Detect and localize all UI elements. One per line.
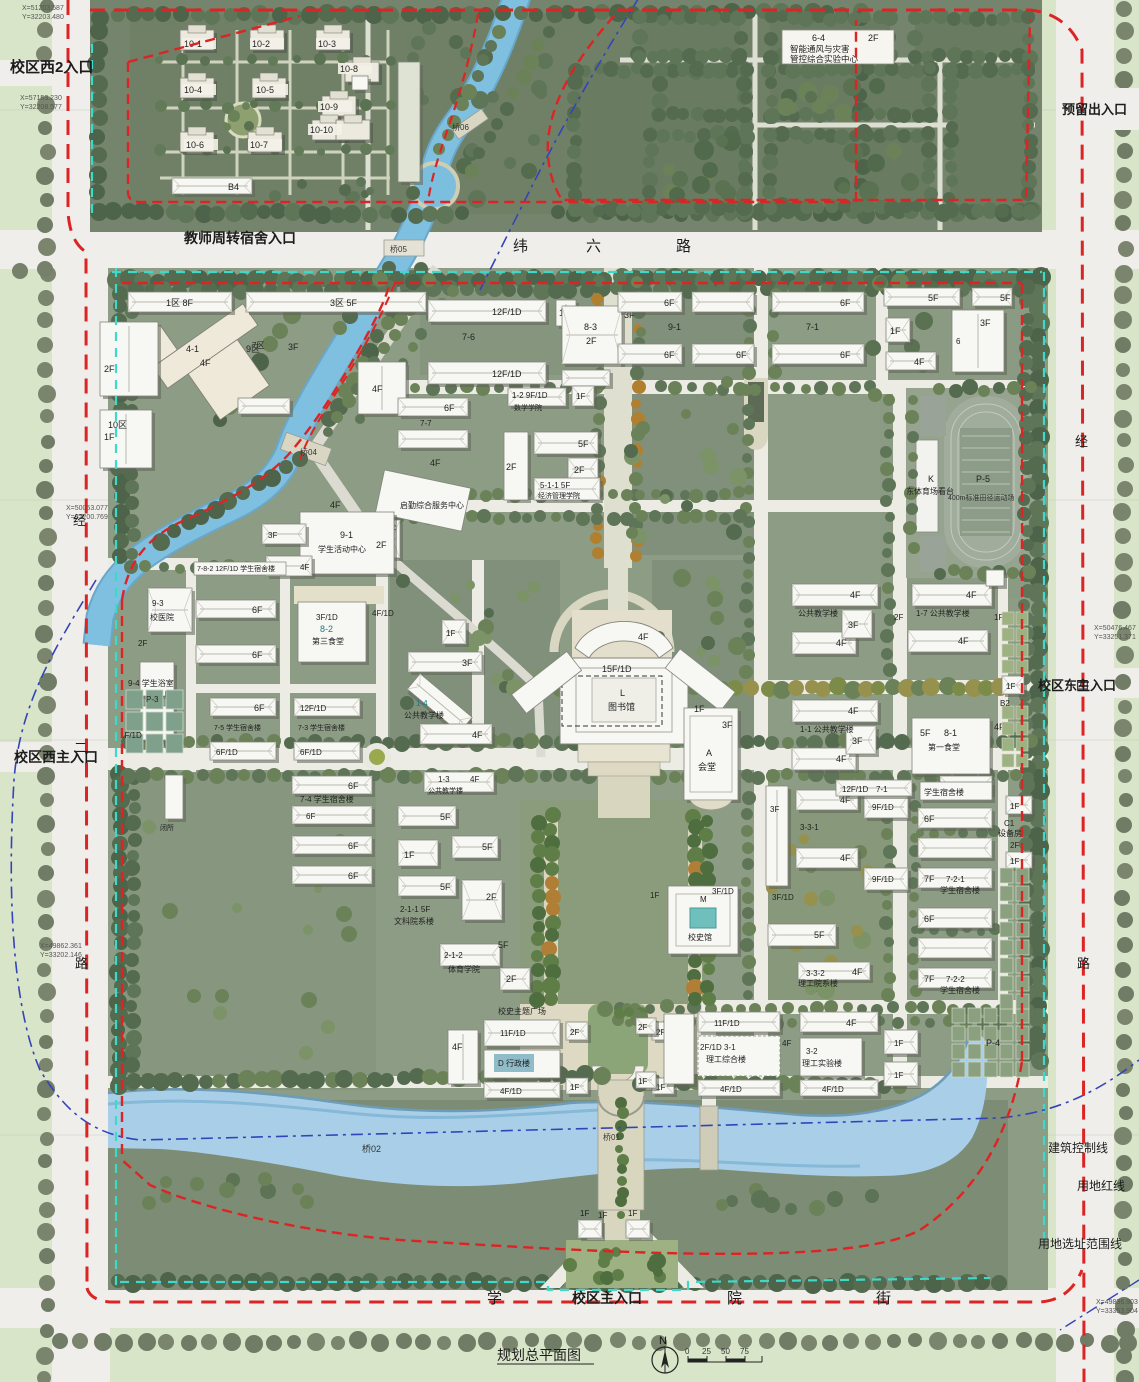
svg-text:文科院系楼: 文科院系楼 [394,916,434,926]
svg-text:6F: 6F [348,871,359,881]
svg-text:理工实验楼: 理工实验楼 [802,1058,842,1068]
svg-text:6F: 6F [924,914,935,924]
svg-text:11F/1D: 11F/1D [500,1029,526,1038]
svg-text:7-7: 7-7 [420,419,432,428]
svg-text:P-3: P-3 [146,695,159,704]
svg-text:理工院系楼: 理工院系楼 [798,978,838,988]
svg-text:6F: 6F [254,703,265,713]
svg-text:4F: 4F [848,706,859,716]
svg-text:4F: 4F [958,636,969,646]
svg-text:学: 学 [487,1290,502,1307]
svg-text:图书馆: 图书馆 [608,701,635,712]
svg-text:启勤综合服务中心: 启勤综合服务中心 [400,500,464,510]
svg-text:D 行政楼: D 行政楼 [498,1058,530,1068]
svg-text:50: 50 [721,1347,730,1356]
svg-text:学生宿舍楼: 学生宿舍楼 [940,985,980,995]
svg-text:4F: 4F [470,775,479,784]
svg-text:Y=33353.904: Y=33353.904 [1096,1308,1138,1315]
svg-text:4F: 4F [852,967,863,977]
svg-text:1F: 1F [570,1083,579,1092]
svg-text:2F/1D 3-1: 2F/1D 3-1 [700,1043,736,1052]
svg-text:2F: 2F [638,1023,647,1032]
svg-text:9-1: 9-1 [668,322,681,332]
svg-text:7区: 7区 [252,341,264,350]
svg-text:10-5: 10-5 [256,85,274,95]
svg-text:4F: 4F [846,1018,857,1028]
svg-text:4F: 4F [914,357,925,367]
svg-text:6F/1D: 6F/1D [216,748,238,757]
svg-text:预留出入口: 预留出入口 [1062,102,1127,117]
svg-text:校区主入口: 校区主入口 [572,1290,642,1306]
svg-text:3F: 3F [288,342,299,352]
svg-text:校区西2入口: 校区西2入口 [10,58,93,76]
svg-text:街: 街 [876,1290,891,1307]
svg-text:1区 8F: 1区 8F [166,298,194,308]
svg-text:2F: 2F [104,364,115,374]
svg-text:400m标准田径运动场: 400m标准田径运动场 [948,493,1015,502]
svg-text:4-1: 4-1 [186,344,199,354]
svg-text:3F: 3F [770,805,779,814]
svg-text:3F/1D: 3F/1D [316,613,338,622]
svg-text:闭所: 闭所 [160,823,174,832]
svg-text:12F/1D: 12F/1D [842,785,868,794]
svg-text:10-4: 10-4 [184,85,202,95]
svg-text:X=50053.077: X=50053.077 [66,505,108,512]
svg-text:2F: 2F [868,33,879,43]
svg-text:2-1-2: 2-1-2 [444,951,463,960]
svg-text:4F/1D: 4F/1D [720,1085,742,1094]
svg-text:桥02: 桥02 [362,1143,381,1154]
svg-text:4F: 4F [452,1042,463,1052]
svg-text:设备房: 设备房 [998,828,1022,838]
svg-text:X=51203.587: X=51203.587 [22,5,64,12]
svg-text:4F: 4F [300,563,309,572]
svg-text:纬: 纬 [513,238,528,255]
svg-text:1F: 1F [576,392,585,401]
svg-text:3F: 3F [852,736,863,746]
svg-text:校史主题广场: 校史主题广场 [498,1006,546,1016]
svg-text:桥04: 桥04 [300,447,317,457]
svg-text:7-3 学生宿舍楼: 7-3 学生宿舍楼 [298,723,345,732]
svg-text:7-4 学生宿舍楼: 7-4 学生宿舍楼 [300,794,354,804]
svg-text:规划总平面图: 规划总平面图 [497,1347,581,1363]
svg-text:10-2: 10-2 [252,39,270,49]
svg-text:体育学院: 体育学院 [448,964,480,974]
svg-text:4F: 4F [850,590,861,600]
svg-text:1F: 1F [628,1209,637,1218]
svg-text:1-4: 1-4 [416,699,428,708]
svg-text:1F: 1F [650,891,659,900]
svg-text:2F: 2F [376,540,387,550]
svg-text:Y=32203.480: Y=32203.480 [22,14,64,21]
svg-text:学生宿舍楼: 学生宿舍楼 [924,787,964,797]
svg-text:X=49862.361: X=49862.361 [40,943,82,950]
svg-text:4F: 4F [372,384,383,394]
svg-text:6F: 6F [348,781,359,791]
svg-text:4F/1D: 4F/1D [500,1087,522,1096]
svg-text:公共教学楼: 公共教学楼 [798,608,838,618]
svg-text:7-1: 7-1 [806,322,819,332]
svg-text:1F: 1F [1010,857,1019,866]
svg-text:2F: 2F [486,892,497,902]
svg-text:3-3-1: 3-3-1 [800,823,819,832]
svg-text:3F: 3F [268,531,277,540]
svg-text:C1: C1 [1004,819,1015,828]
svg-text:X=57153.230: X=57153.230 [20,95,62,102]
svg-text:2F: 2F [570,1028,579,1037]
svg-text:5F: 5F [498,940,509,950]
svg-text:6F: 6F [348,841,359,851]
svg-text:1F: 1F [1010,802,1019,811]
svg-text:10-3: 10-3 [318,39,336,49]
svg-text:6F: 6F [444,403,455,413]
svg-text:学生活动中心: 学生活动中心 [318,544,366,554]
svg-text:7-5 学生宿舍楼: 7-5 学生宿舍楼 [214,723,261,732]
svg-text:2F: 2F [574,465,585,475]
svg-text:15F/1D: 15F/1D [602,664,632,674]
svg-text:桥01: 桥01 [603,1132,620,1142]
svg-text:0: 0 [685,1347,690,1356]
svg-text:院: 院 [727,1289,742,1307]
svg-text:8-1: 8-1 [944,728,957,738]
svg-text:12F/1D: 12F/1D [300,704,326,713]
svg-text:1-3: 1-3 [438,775,450,784]
svg-text:1F: 1F [694,704,705,714]
svg-text:4F: 4F [840,853,851,863]
svg-text:5-1-1 5F: 5-1-1 5F [540,481,570,490]
svg-text:用地红线: 用地红线 [1077,1178,1125,1193]
svg-text:X=49836.903: X=49836.903 [1096,1299,1138,1306]
svg-text:第一食堂: 第一食堂 [928,742,960,752]
svg-text:管控综合实验中心: 管控综合实验中心 [790,54,859,64]
svg-text:3F: 3F [462,658,473,668]
svg-text:会堂: 会堂 [698,761,716,772]
svg-text:K: K [928,474,934,484]
svg-text:5F: 5F [578,439,589,449]
svg-text:5F: 5F [928,293,939,303]
svg-text:第三食堂: 第三食堂 [312,636,344,646]
svg-text:6F: 6F [664,350,675,360]
svg-text:3-3-2: 3-3-2 [806,969,825,978]
svg-text:8-2: 8-2 [320,624,333,634]
svg-text:用地选址范围线: 用地选址范围线 [1038,1237,1122,1251]
svg-text:7F: 7F [924,874,935,884]
svg-text:1F: 1F [404,850,415,860]
svg-text:6: 6 [956,337,961,346]
svg-text:2F: 2F [894,613,903,622]
svg-text:东体育场看台: 东体育场看台 [906,486,954,496]
svg-text:校史馆: 校史馆 [688,932,712,942]
svg-text:二: 二 [74,740,87,755]
svg-text:25: 25 [702,1347,711,1356]
svg-text:桥06: 桥06 [452,122,469,132]
svg-text:5F: 5F [814,930,825,940]
svg-text:路: 路 [1077,956,1090,971]
svg-text:1F: 1F [580,1209,589,1218]
svg-text:12F/1D: 12F/1D [492,307,522,317]
svg-text:2F: 2F [586,336,597,346]
svg-text:3-2: 3-2 [806,1047,818,1056]
svg-text:四: 四 [1076,678,1089,693]
svg-text:1F: 1F [446,629,455,638]
svg-text:X=50476.467: X=50476.467 [1094,625,1136,632]
svg-text:A: A [706,748,712,758]
svg-text:经济管理学院: 经济管理学院 [538,491,580,500]
svg-text:数学学院: 数学学院 [514,403,542,412]
svg-text:7-8-2 12F/1D 学生宿舍楼: 7-8-2 12F/1D 学生宿舍楼 [197,564,275,573]
svg-text:桥05: 桥05 [390,244,407,254]
svg-text:P-5: P-5 [976,474,990,484]
svg-text:4F: 4F [430,458,441,468]
svg-text:9-1: 9-1 [340,530,353,540]
svg-text:经: 经 [73,513,86,528]
svg-text:7-1: 7-1 [876,785,888,794]
svg-text:Y=33251.371: Y=33251.371 [1094,634,1136,641]
svg-text:1F: 1F [890,326,901,336]
svg-text:7-2-1: 7-2-1 [946,875,965,884]
svg-text:7-2-2: 7-2-2 [946,975,965,984]
svg-text:2F: 2F [1010,841,1019,850]
svg-text:经: 经 [1075,434,1088,449]
svg-text:M: M [700,895,707,904]
svg-text:1F: 1F [894,1039,903,1048]
svg-text:Y=32208.577: Y=32208.577 [20,104,62,111]
svg-text:理工综合楼: 理工综合楼 [706,1054,746,1064]
svg-text:5F: 5F [1000,293,1011,303]
svg-text:6F: 6F [664,298,675,308]
svg-text:1-2 9F/1D: 1-2 9F/1D [512,391,548,400]
svg-text:4F/1D: 4F/1D [822,1085,844,1094]
svg-text:公共教学楼: 公共教学楼 [404,710,444,720]
svg-text:3F: 3F [722,720,733,730]
svg-text:路: 路 [676,238,691,255]
svg-text:12F/1D: 12F/1D [492,369,522,379]
svg-text:3F: 3F [848,620,859,630]
svg-text:路: 路 [75,956,88,971]
svg-text:9-3: 9-3 [152,599,164,608]
svg-text:7-6: 7-6 [462,332,475,342]
svg-text:10-9: 10-9 [320,102,338,112]
svg-text:B2: B2 [1000,699,1010,708]
svg-text:4F: 4F [330,500,341,510]
svg-text:3F/1D: 3F/1D [712,887,734,896]
svg-text:智能通风与灾害: 智能通风与灾害 [790,44,850,54]
svg-text:1F: 1F [598,1211,607,1220]
svg-text:建筑控制线: 建筑控制线 [1048,1140,1108,1155]
svg-text:5F: 5F [440,882,451,892]
svg-text:2F: 2F [506,974,517,984]
svg-text:P-4: P-4 [986,1038,1000,1048]
svg-text:2F: 2F [506,462,517,472]
svg-text:5F: 5F [920,728,931,738]
svg-text:6F: 6F [840,350,851,360]
svg-text:10-8: 10-8 [340,64,358,74]
svg-text:4F: 4F [966,590,977,600]
svg-text:N: N [659,1335,667,1347]
svg-text:L: L [620,688,625,698]
svg-text:1-7 公共教学楼: 1-7 公共教学楼 [916,608,970,618]
svg-text:6F: 6F [252,605,263,615]
svg-text:6F: 6F [736,350,747,360]
svg-text:3区 5F: 3区 5F [330,298,358,308]
svg-text:6F: 6F [924,814,935,824]
svg-text:2F: 2F [138,639,147,648]
svg-text:1F: 1F [638,1077,647,1086]
svg-text:1F: 1F [894,1071,903,1080]
svg-text:9F/1D: 9F/1D [872,875,894,884]
svg-text:10-10: 10-10 [310,125,333,135]
svg-text:校医院: 校医院 [150,612,174,622]
svg-text:B4: B4 [228,182,239,192]
svg-text:10-6: 10-6 [186,140,204,150]
svg-text:1F/1D: 1F/1D [120,731,142,740]
svg-text:75: 75 [740,1347,749,1356]
svg-text:7F: 7F [924,974,935,984]
svg-text:公共教学楼: 公共教学楼 [428,786,463,795]
svg-text:1F: 1F [1006,682,1015,691]
svg-text:5F: 5F [482,842,493,852]
svg-text:10区: 10区 [108,420,127,430]
svg-text:9-4 学生浴室: 9-4 学生浴室 [128,678,174,688]
svg-text:5F: 5F [440,812,451,822]
svg-text:6-4: 6-4 [812,33,825,43]
svg-text:9F/1D: 9F/1D [872,803,894,812]
svg-text:3F/1D: 3F/1D [772,893,794,902]
svg-text:8-3: 8-3 [584,322,597,332]
svg-text:4F: 4F [200,358,211,368]
svg-text:1F: 1F [104,432,115,442]
svg-text:学生宿舍楼: 学生宿舍楼 [940,885,980,895]
svg-text:6F: 6F [306,812,315,821]
svg-text:4F: 4F [472,730,483,740]
svg-text:1-1 公共教学楼: 1-1 公共教学楼 [800,724,854,734]
svg-text:6F: 6F [252,650,263,660]
svg-text:4F: 4F [836,754,847,764]
svg-text:4F/1D: 4F/1D [372,609,394,618]
svg-text:6F: 6F [840,298,851,308]
svg-text:10-7: 10-7 [250,140,268,150]
svg-text:4F: 4F [638,632,649,642]
svg-text:2-1-1 5F: 2-1-1 5F [400,905,430,914]
svg-text:4F: 4F [782,1039,791,1048]
svg-text:六: 六 [586,238,601,255]
svg-text:11F/1D: 11F/1D [714,1019,740,1028]
svg-text:6F/1D: 6F/1D [300,748,322,757]
svg-text:教师周转宿舍入口: 教师周转宿舍入口 [184,230,296,246]
svg-text:3F: 3F [980,318,991,328]
